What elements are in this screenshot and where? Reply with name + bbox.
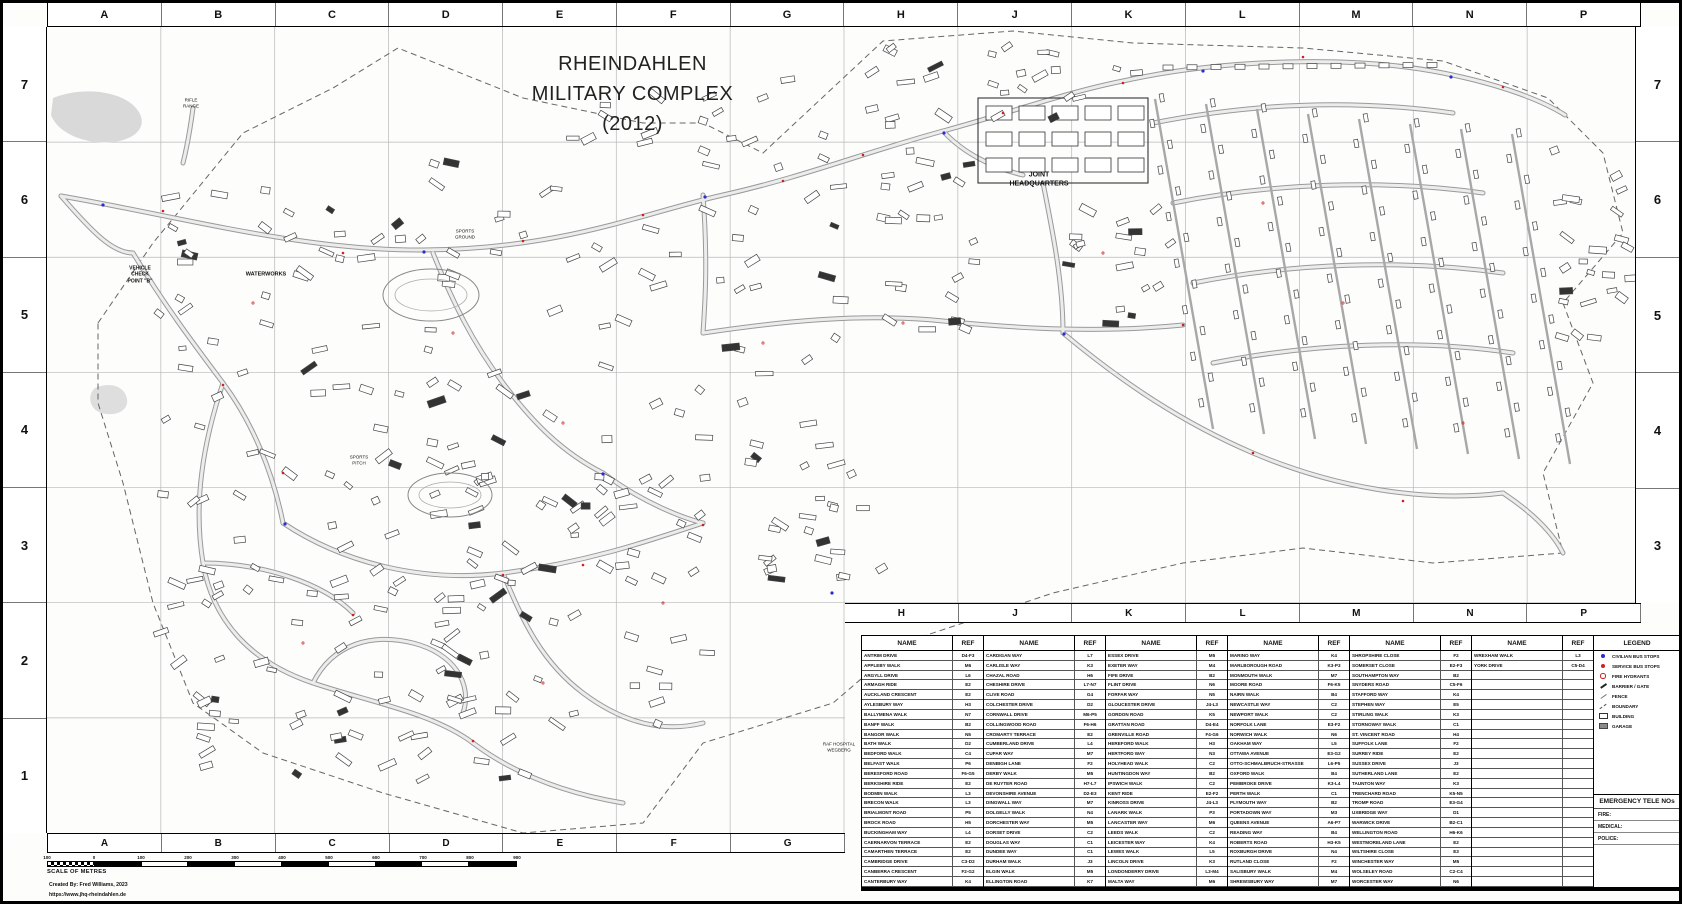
street-ref: L6 [953, 671, 983, 681]
street-ref [1563, 671, 1593, 681]
street-index-row [1472, 828, 1593, 838]
street-index-row: SNYDERS ROADC5-F6 [1350, 680, 1471, 690]
street-ref: M5 [1441, 857, 1471, 867]
street-name: READING WAY [1228, 828, 1319, 838]
street-index-row: STEPHEN WAYE5 [1350, 700, 1471, 710]
grid-numbers-left: 7654321 [3, 27, 47, 833]
emergency-row: POLICE: [1594, 833, 1680, 845]
street-index-row: NAIRN WALKB4 [1228, 690, 1349, 700]
street-ref: F4-G6 [1197, 730, 1227, 740]
street-index-row: COLCHESTER DRIVED2 [984, 700, 1105, 710]
grid-letter: H [844, 3, 958, 26]
street-name: SOUTHAMPTON WAY [1350, 671, 1441, 681]
street-name: MOORE ROAD [1228, 680, 1319, 690]
street-index-row: LANCASTER WAYM6 [1106, 818, 1227, 828]
street-name: RUTLAND CLOSE [1228, 857, 1319, 867]
street-index-row: SHROPSHIRE CLOSEF2 [1350, 651, 1471, 661]
street-name: NEWPORT WALK [1228, 710, 1319, 720]
street-name: MONMOUTH WALK [1228, 671, 1319, 681]
street-name: CHAZAL ROAD [984, 671, 1075, 681]
index-header: NAMEREF [862, 636, 983, 651]
grid-letter: K [1072, 604, 1186, 622]
street-index-row: BANFF WALKB2 [862, 720, 983, 730]
street-index-row [1472, 730, 1593, 740]
street-index-row [1472, 867, 1593, 877]
street-ref: L3 [953, 798, 983, 808]
scale-tick: 500 [325, 855, 333, 860]
index-header: NAMEREF [1472, 636, 1593, 651]
street-ref: P6 [953, 759, 983, 769]
street-name: SNYDERS ROAD [1350, 680, 1441, 690]
street-name: LANCASTER WAY [1106, 818, 1197, 828]
ref-header: REF [953, 636, 983, 650]
street-index-row: WINCHESTER WAYM5 [1350, 857, 1471, 867]
street-name: WINCHESTER WAY [1350, 857, 1441, 867]
street-index-row: FLINT DRIVEN6 [1106, 680, 1227, 690]
street-index-row [1472, 759, 1593, 769]
street-ref: C2-C4 [1441, 867, 1471, 877]
legend-label: GARAGE [1612, 724, 1632, 729]
street-index-row: CORNWALL DRIVEM6-P5 [984, 710, 1105, 720]
street-ref: K3 [1441, 779, 1471, 789]
map-area-label: WATERWORKS [246, 272, 286, 279]
street-name: QUEENS AVENUE [1228, 818, 1319, 828]
grid-number: 1 [3, 719, 46, 833]
street-index-row: HUNTINGDON WAYB2 [1106, 769, 1227, 779]
legend-item: BOUNDARY [1594, 701, 1680, 711]
dot-blue-icon [1598, 654, 1608, 658]
grid-letter: J [958, 3, 1072, 26]
street-name: DURHAM WALK [984, 857, 1075, 867]
scale-tick: 400 [278, 855, 286, 860]
street-name: CHESHIRE DRIVE [984, 680, 1075, 690]
street-ref: M5 [1197, 651, 1227, 661]
street-ref [1563, 838, 1593, 848]
grid-letter: H [845, 604, 959, 622]
street-ref [1563, 857, 1593, 867]
street-index-row [1472, 680, 1593, 690]
street-name: HOLYHEAD WALK [1106, 759, 1197, 769]
name-header: NAME [1106, 636, 1197, 650]
street-ref: E3-G2 [1319, 749, 1349, 759]
street-index-row: CAMARTHEN TERRACEE2 [862, 848, 983, 858]
street-index-row: PLYMOUTH WAYB2 [1228, 798, 1349, 808]
street-index-row: DE RUYTER ROADH7-L7 [984, 779, 1105, 789]
street-name: SUSSEX DRIVE [1350, 759, 1441, 769]
street-ref: C2 [1197, 759, 1227, 769]
street-ref: F2 [1075, 759, 1105, 769]
street-index-row [1472, 838, 1593, 848]
street-name: BROCK ROAD [862, 818, 953, 828]
street-ref: B4 [1319, 690, 1349, 700]
street-index-row: SOMERSET CLOSEE2-F3 [1350, 661, 1471, 671]
street-ref: N5 [953, 730, 983, 740]
street-name: LEWES WALK [1106, 848, 1197, 858]
street-name: EXETER WAY [1106, 661, 1197, 671]
street-index-row: BERESFORD ROADF6-G5 [862, 769, 983, 779]
street-name: DORSET DRIVE [984, 828, 1075, 838]
grid-letter: G [731, 834, 845, 852]
street-name: CAERNARVON TERRACE [862, 838, 953, 848]
street-index-row [1472, 798, 1593, 808]
street-ref: F2-G2 [953, 867, 983, 877]
grid-letters-bottom-right: HJKLMNP [845, 603, 1641, 623]
street-ref: E2 [953, 779, 983, 789]
scale-tick: 100 [43, 855, 51, 860]
legend-label: SERVICE BUS STOPS [1612, 664, 1660, 669]
street-name: HERTFORD WAY [1106, 749, 1197, 759]
street-name: GRATTAN ROAD [1106, 720, 1197, 730]
street-name: BANGOR WALK [862, 730, 953, 740]
street-index-row [1472, 690, 1593, 700]
street-name [1472, 759, 1563, 769]
street-name: NORWICH WALK [1228, 730, 1319, 740]
street-index-row: LANARK WALKP3 [1106, 808, 1227, 818]
street-ref: N5 [1197, 690, 1227, 700]
street-index-row: DUNDEE WAYC1 [984, 848, 1105, 858]
scale-tick: 200 [184, 855, 192, 860]
scale-tick: 300 [231, 855, 239, 860]
street-name [1472, 690, 1563, 700]
street-index-row: SUTHERLAND LANEE2 [1350, 769, 1471, 779]
street-index-row: MONMOUTH WALKM7 [1228, 671, 1349, 681]
street-ref: M7 [1319, 671, 1349, 681]
street-index-row: HOLYHEAD WALKC2 [1106, 759, 1227, 769]
street-ref: K7 [1075, 877, 1105, 887]
street-ref: J3 [1075, 857, 1105, 867]
grid-letter: D [389, 3, 503, 26]
street-name: FORFAR WAY [1106, 690, 1197, 700]
street-ref: M5 [1075, 769, 1105, 779]
street-ref [1563, 720, 1593, 730]
street-index-row: ANTRIM DRIVED4-F3 [862, 651, 983, 661]
credits: Created By: Fred Williams, 2023 https://… [49, 881, 128, 901]
slash-bold-icon [1598, 685, 1608, 687]
building-icon [1598, 713, 1608, 719]
scale-segment [48, 862, 95, 866]
street-name [1472, 769, 1563, 779]
street-index-row: EXETER WAYM4 [1106, 661, 1227, 671]
index-header: NAMEREF [1228, 636, 1349, 651]
street-name: LONDONDERRY DRIVE [1106, 867, 1197, 877]
legend-label: BUILDING [1612, 714, 1634, 719]
street-name: APPLEBY WALK [862, 661, 953, 671]
street-name: OTTAWA AVENUE [1228, 749, 1319, 759]
street-name: BEDFORD WALK [862, 749, 953, 759]
street-ref: L7-N7 [1075, 680, 1105, 690]
street-name: DORCHESTER WAY [984, 818, 1075, 828]
street-index-row [1472, 877, 1593, 887]
grid-letter: K [1072, 3, 1186, 26]
grid-letter: F [617, 834, 731, 852]
street-index-row: CHAZAL ROADH6 [984, 671, 1105, 681]
street-name: DOUGLAS WAY [984, 838, 1075, 848]
street-ref: M6 [1197, 877, 1227, 887]
grid-letter: P [1527, 3, 1640, 26]
map-sheet: ABCDEFGHJKLMNP 7654321 76543 ABCDEFG HJK… [0, 0, 1682, 904]
street-index-row: GRATTAN ROADD4-E4 [1106, 720, 1227, 730]
street-name [1472, 749, 1563, 759]
grid-letter: A [48, 3, 162, 26]
street-name: NORFOLK LANE [1228, 720, 1319, 730]
grid-number: 7 [3, 27, 46, 142]
street-index-row: SUFFOLK LANEF2 [1350, 739, 1471, 749]
street-index-row: MALTA WAYM6 [1106, 877, 1227, 887]
street-index-row: NEWCASTLE WAYC2 [1228, 700, 1349, 710]
legend-label: BOUNDARY [1612, 704, 1638, 709]
map-area-label: RIFLE RANGE [183, 97, 199, 108]
street-index-row: LEICESTER WAYK4 [1106, 838, 1227, 848]
street-ref: M5 [1075, 818, 1105, 828]
street-name: BALLYMENA WALK [862, 710, 953, 720]
emergency-row: MEDICAL: [1594, 821, 1680, 833]
street-index-row: SURREY RIDEE2 [1350, 749, 1471, 759]
street-ref: M7 [1075, 749, 1105, 759]
index-column: NAMEREFWREXHAM WALKL3YORK DRIVEC5-D4 [1472, 636, 1594, 887]
street-ref: M5 [1075, 867, 1105, 877]
street-index-row: WOLSELEY ROADC2-C4 [1350, 867, 1471, 877]
street-name: DEVONSHIRE AVENUE [984, 789, 1075, 799]
street-index-row: STIRLING WALKK3 [1350, 710, 1471, 720]
grid-letter: C [276, 3, 390, 26]
grid-number: 7 [1636, 27, 1679, 142]
street-index-row: ROBERTS ROADH3-K5 [1228, 838, 1349, 848]
street-ref: L4 [1075, 739, 1105, 749]
street-ref: E2 [953, 690, 983, 700]
street-name: SHREWSBURY WAY [1228, 877, 1319, 887]
street-ref: D4-F3 [953, 651, 983, 661]
street-name: SURREY RIDE [1350, 749, 1441, 759]
grid-letter: N [1413, 3, 1527, 26]
index-header: NAMEREF [984, 636, 1105, 651]
street-index-row [1472, 769, 1593, 779]
street-name [1472, 700, 1563, 710]
street-name: ROBERTS ROAD [1228, 838, 1319, 848]
street-ref: C4 [953, 749, 983, 759]
street-name: COLCHESTER DRIVE [984, 700, 1075, 710]
name-header: NAME [1472, 636, 1563, 650]
street-ref: B2 [953, 720, 983, 730]
street-name: PERTH WALK [1228, 789, 1319, 799]
street-ref: B2 [1197, 769, 1227, 779]
street-ref: E2 [1075, 730, 1105, 740]
street-name: SALISBURY WALK [1228, 867, 1319, 877]
street-ref: J4-L3 [1197, 798, 1227, 808]
street-index-row: OTTO-SCHMALBRUCH-STRASSEL6-P5 [1228, 759, 1349, 769]
street-name: ESSEX DRIVE [1106, 651, 1197, 661]
street-name: BRECON WALK [862, 798, 953, 808]
street-index-row: DOLGELLY WALKN4 [984, 808, 1105, 818]
street-index-row: NORFOLK LANEE3-F2 [1228, 720, 1349, 730]
street-index-row: ARMAGH RIDEE2 [862, 680, 983, 690]
street-index-row: APPLEBY WALKM6 [862, 661, 983, 671]
slash-dashed-icon [1598, 706, 1608, 707]
street-name [1472, 720, 1563, 730]
street-ref: J4-L3 [1197, 700, 1227, 710]
index-column: NAMEREFANTRIM DRIVED4-F3APPLEBY WALKM6AR… [862, 636, 984, 887]
street-ref: M6-P5 [1075, 710, 1105, 720]
street-name [1472, 789, 1563, 799]
street-ref: L4 [953, 828, 983, 838]
index-column: NAMEREFCARDIGAN WAYL7CARLISLE WAYK3CHAZA… [984, 636, 1106, 887]
street-index-row: KINROSS DRIVEJ4-L3 [1106, 798, 1227, 808]
emergency-row: FIRE: [1594, 809, 1680, 821]
scale-tick: 900 [513, 855, 521, 860]
street-name: SUFFOLK LANE [1350, 739, 1441, 749]
street-ref: E2 [953, 848, 983, 858]
street-index-row: STAFFORD WAYK4 [1350, 690, 1471, 700]
street-ref: L5 [1319, 739, 1349, 749]
grid-letters-top: ABCDEFGHJKLMNP [47, 3, 1641, 27]
scale-segment [469, 862, 516, 866]
street-ref: C5-D4 [1563, 661, 1593, 671]
street-name: ARMAGH RIDE [862, 680, 953, 690]
street-ref [1563, 848, 1593, 858]
street-ref [1563, 730, 1593, 740]
grid-letter: M [1300, 3, 1414, 26]
street-ref [1563, 828, 1593, 838]
street-index-row: CUPAR WAYM7 [984, 749, 1105, 759]
legend-label: FENCE [1612, 694, 1628, 699]
street-name: GORDON ROAD [1106, 710, 1197, 720]
street-ref: D1 [1441, 808, 1471, 818]
street-name: OXFORD WALK [1228, 769, 1319, 779]
street-ref: K4 [1319, 651, 1349, 661]
street-index-row: SUSSEX DRIVEJ3 [1350, 759, 1471, 769]
street-index-row: LEWES WALKL5 [1106, 848, 1227, 858]
scale-segment [282, 862, 329, 866]
street-index-row: BANGOR WALKN5 [862, 730, 983, 740]
legend-item: SERVICE BUS STOPS [1594, 661, 1680, 671]
street-index-row: BERKSHIRE RIDEE2 [862, 779, 983, 789]
street-name: ROXBURGH DRIVE [1228, 848, 1319, 858]
street-index-row [1472, 739, 1593, 749]
street-ref: F2 [1441, 739, 1471, 749]
street-name: BRIALMONT ROAD [862, 808, 953, 818]
street-name: ST. VINCENT ROAD [1350, 730, 1441, 740]
street-ref: D2 [953, 739, 983, 749]
street-index-row: AUCKLAND CRESCENTE2 [862, 690, 983, 700]
street-ref: F6-K5 [1319, 680, 1349, 690]
street-index-row: NORWICH WALKN6 [1228, 730, 1349, 740]
street-name: CLIVE ROAD [984, 690, 1075, 700]
map-area-label: SPORTS GROUND [455, 228, 475, 239]
street-index-row: UXBRIDGE WAYD1 [1350, 808, 1471, 818]
name-header: NAME [1350, 636, 1441, 650]
street-ref: C2 [1075, 828, 1105, 838]
street-name: PORTADOWN WAY [1228, 808, 1319, 818]
street-index-row: WILTSHIRE CLOSEE3 [1350, 848, 1471, 858]
street-name: AYLESBURY WAY [862, 700, 953, 710]
legend-item: BUILDING [1594, 711, 1680, 721]
street-index-row: CAMBRIDGE DRIVEC3-D2 [862, 857, 983, 867]
street-index-row: FIFE DRIVEB2 [1106, 671, 1227, 681]
street-index-row: WORCESTER WAYN6 [1350, 877, 1471, 887]
scale-segment [235, 862, 282, 866]
street-name: HUNTINGDON WAY [1106, 769, 1197, 779]
street-index-row: DINGWALL WAYM7 [984, 798, 1105, 808]
street-index-row [1472, 710, 1593, 720]
street-ref: E2-F2 [1197, 789, 1227, 799]
street-ref: E2 [1441, 749, 1471, 759]
street-name: MALTA WAY [1106, 877, 1197, 887]
street-ref: K3 [1075, 661, 1105, 671]
grid-letter: A [48, 834, 162, 852]
street-index-row: STORNOWAY WALKC1 [1350, 720, 1471, 730]
street-ref: D4-E4 [1197, 720, 1227, 730]
street-name [1472, 808, 1563, 818]
street-name [1472, 818, 1563, 828]
street-index-row: AYLESBURY WAYH3 [862, 700, 983, 710]
street-ref: C5-F6 [1441, 680, 1471, 690]
scale-tick: 600 [372, 855, 380, 860]
street-index-row: HEREFORD WALKH3 [1106, 739, 1227, 749]
street-index-table: NAMEREFANTRIM DRIVED4-F3APPLEBY WALKM6AR… [861, 635, 1681, 891]
street-index-row [1472, 779, 1593, 789]
street-name [1472, 798, 1563, 808]
map-title-line2: MILITARY COMPLEX [505, 79, 760, 109]
street-index-row: DORCHESTER WAYM5 [984, 818, 1105, 828]
grid-number: 6 [3, 142, 46, 257]
street-ref: K4 [1197, 838, 1227, 848]
street-index-row: WELLINGTON ROADH6-K6 [1350, 828, 1471, 838]
street-ref [1563, 759, 1593, 769]
street-ref: E3-G4 [1441, 798, 1471, 808]
street-name: WARWICK DRIVE [1350, 818, 1441, 828]
street-name: CAMBRIDGE DRIVE [862, 857, 953, 867]
street-index-row [1472, 857, 1593, 867]
name-header: NAME [862, 636, 953, 650]
street-index-row: IPSWICH WALKC2 [1106, 779, 1227, 789]
street-ref: N6 [1441, 877, 1471, 887]
street-ref: D2-E3 [1075, 789, 1105, 799]
street-name: SUTHERLAND LANE [1350, 769, 1441, 779]
street-name: WORCESTER WAY [1350, 877, 1441, 887]
legend-header: LEGEND [1594, 636, 1680, 651]
grid-letter: N [1414, 604, 1528, 622]
street-index-row [1472, 720, 1593, 730]
street-name: CORNWALL DRIVE [984, 710, 1075, 720]
street-ref: N4 [1075, 808, 1105, 818]
street-ref: N6 [1197, 680, 1227, 690]
legend-item: FIRE HYDRANTS [1594, 671, 1680, 681]
street-ref: C1 [1075, 838, 1105, 848]
street-index-row: CARLISLE WAYK3 [984, 661, 1105, 671]
legend-item: FENCE [1594, 691, 1680, 701]
street-ref: H6 [1075, 671, 1105, 681]
street-ref [1563, 749, 1593, 759]
scale-bar-segments [47, 861, 517, 867]
street-index-row: RUTLAND CLOSEF2 [1228, 857, 1349, 867]
street-ref: B2-C1 [1441, 818, 1471, 828]
scale-tick-labels: 1000100200300400500600700800900 [47, 855, 517, 861]
street-name: CUPAR WAY [984, 749, 1075, 759]
street-name: STIRLING WALK [1350, 710, 1441, 720]
street-index-row: HERTFORD WAYN3 [1106, 749, 1227, 759]
street-ref: C1 [1319, 789, 1349, 799]
grid-letter: J [959, 604, 1073, 622]
street-index-row: NEWPORT WALKC2 [1228, 710, 1349, 720]
emergency-header: EMERGENCY TELE NOs [1594, 795, 1680, 809]
street-name: GLOUCESTER DRIVE [1106, 700, 1197, 710]
street-name: IPSWICH WALK [1106, 779, 1197, 789]
street-ref: E2 [1441, 838, 1471, 848]
street-name [1472, 730, 1563, 740]
legend-label: CIVILIAN BUS STOPS [1612, 654, 1659, 659]
scale-segment [329, 862, 376, 866]
grid-letter: P [1527, 604, 1641, 622]
street-name [1472, 877, 1563, 887]
